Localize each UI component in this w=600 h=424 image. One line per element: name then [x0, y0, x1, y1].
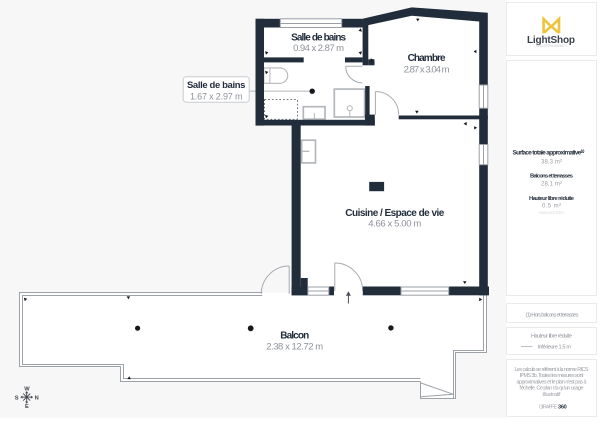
svg-text:38.3 m²: 38.3 m²	[541, 160, 562, 166]
svg-text:S: S	[15, 395, 19, 401]
svg-text:2.87 x 3.04 m: 2.87 x 3.04 m	[404, 64, 450, 75]
svg-text:Salle de bains: Salle de bains	[291, 32, 346, 43]
svg-text:Hauteur libre réduite: Hauteur libre réduite	[529, 196, 575, 202]
svg-text:N: N	[35, 395, 39, 401]
svg-text:IPMS 3b. Toutes les mesures so: IPMS 3b. Toutes les mesures sont	[520, 373, 585, 379]
svg-text:2.38 x 12.72 m: 2.38 x 12.72 m	[266, 341, 323, 352]
svg-text:E: E	[25, 404, 29, 410]
svg-text:W: W	[24, 386, 30, 392]
svg-text:Cuisine / Espace de vie: Cuisine / Espace de vie	[345, 208, 444, 219]
svg-text:l'échelle. Ce plan n'a qu'un u: l'échelle. Ce plan n'a qu'un usage	[520, 386, 584, 392]
svg-text:Balcons et terrasses: Balcons et terrasses	[530, 174, 573, 180]
svg-text:0.5 m²: 0.5 m²	[542, 204, 561, 210]
svg-text:Les calculs se réfèrent à la n: Les calculs se réfèrent à la norme RICS	[515, 367, 589, 373]
svg-text:Balcon: Balcon	[280, 330, 309, 341]
svg-text:Salle de bains: Salle de bains	[187, 80, 246, 91]
svg-text:hauteur sous 1.80 m: hauteur sous 1.80 m	[539, 210, 566, 215]
svg-text:0.94 x 2.87 m: 0.94 x 2.87 m	[293, 43, 344, 54]
svg-text:1.67 x 2.97 m: 1.67 x 2.97 m	[190, 91, 243, 101]
svg-text:4.66 x 5.00 m: 4.66 x 5.00 m	[368, 219, 421, 230]
svg-text:360: 360	[558, 404, 567, 410]
svg-text:Surface totale approximative⁽¹: Surface totale approximative⁽¹⁾	[513, 150, 585, 157]
svg-text:Hauteur libre réduite: Hauteur libre réduite	[531, 333, 572, 339]
svg-text:approximatives et le plan n'es: approximatives et le plan n'est pas à	[517, 379, 587, 385]
svg-text:28.1 m²: 28.1 m²	[541, 181, 562, 187]
svg-text:Inférieure 1.5 m: Inférieure 1.5 m	[538, 344, 572, 350]
svg-text:(1) Hors balcons et terrasses: (1) Hors balcons et terrasses	[526, 313, 579, 319]
svg-text:GIRAFFE: GIRAFFE	[539, 404, 558, 410]
svg-text:illustratif: illustratif	[543, 392, 562, 398]
svg-text:REAL ESTATE AGENCY: REAL ESTATE AGENCY	[536, 44, 567, 48]
svg-text:Chambre: Chambre	[408, 53, 446, 64]
